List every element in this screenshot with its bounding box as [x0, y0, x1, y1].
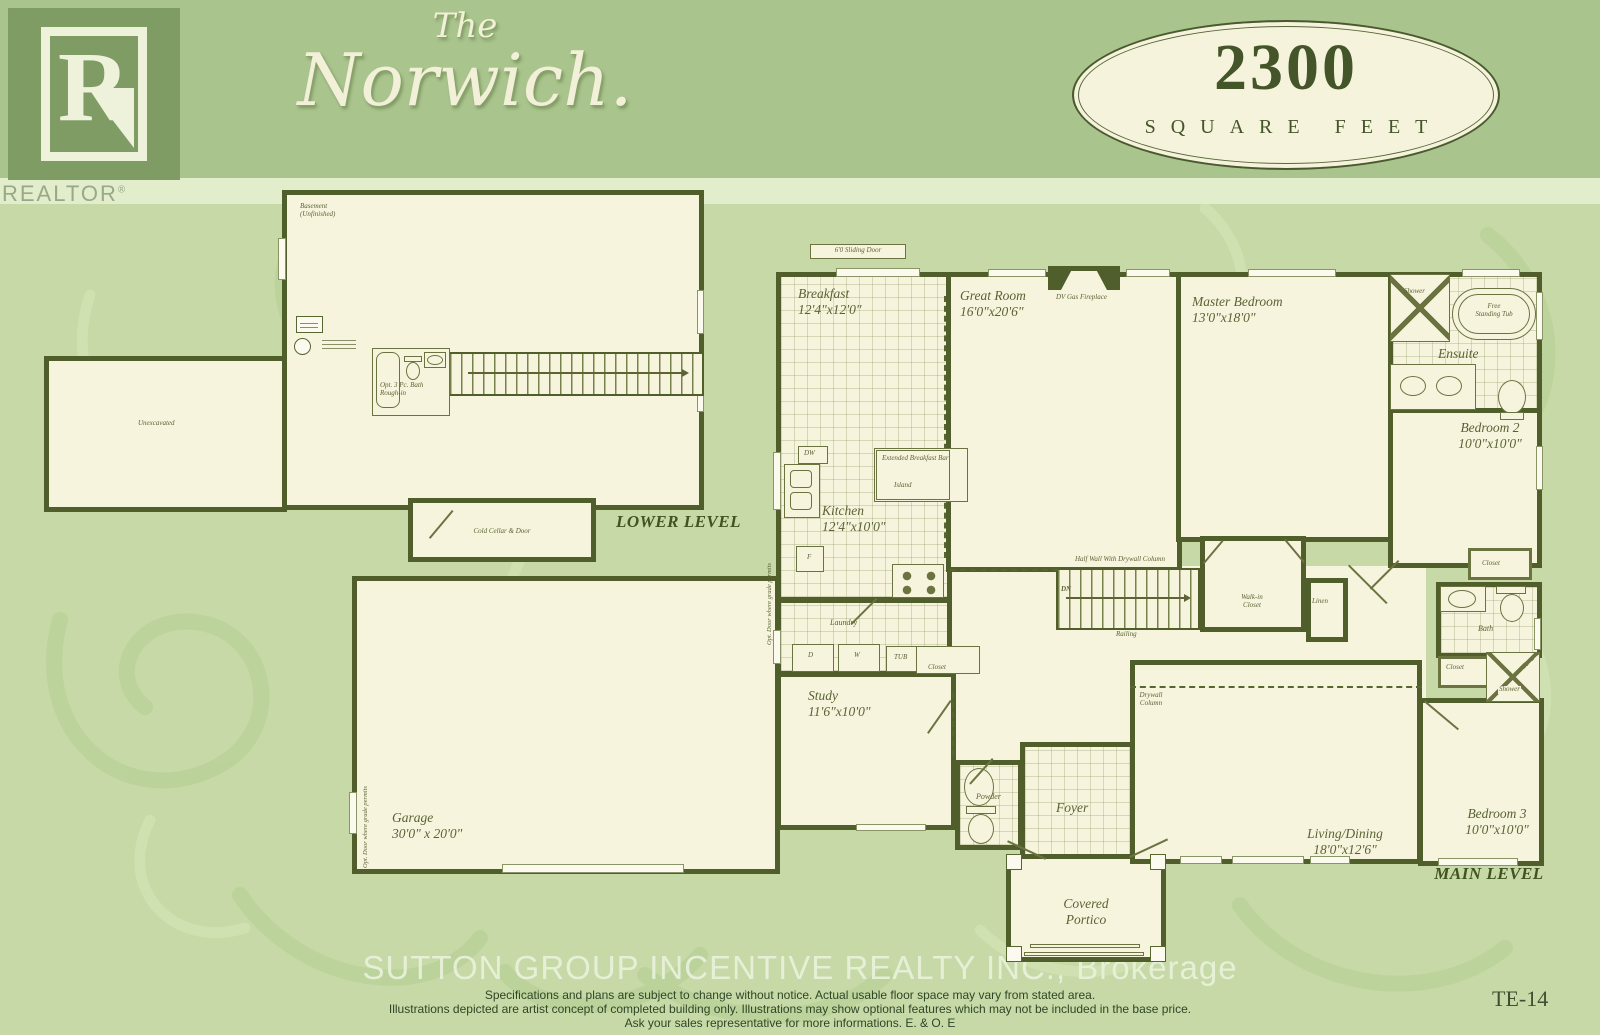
closet-top — [1468, 548, 1532, 580]
room-label-kitchen: Kitchen 12'4"x10'0" — [822, 503, 886, 534]
badge-caption: SQUARE FEET — [1072, 116, 1500, 139]
door-opening — [773, 630, 781, 664]
basement-window — [278, 238, 286, 280]
opt-door-label: Opt. Door where grade permits — [766, 563, 773, 645]
window — [1310, 856, 1350, 864]
toilet-icon — [406, 362, 420, 380]
badge-number: 2300 — [1072, 30, 1500, 106]
room-label-garage: Garage 30'0" x 20'0" — [392, 810, 462, 841]
disclaimer-line: Illustrations depicted are artist concep… — [0, 1002, 1580, 1016]
basement-stairs — [448, 352, 704, 396]
freestanding-tub-label: Free Standing Tub — [1466, 303, 1522, 318]
room-label-ensuite: Ensuite — [1438, 346, 1479, 362]
window — [856, 824, 926, 831]
main-stairs — [1056, 568, 1200, 630]
annotation-squiggle — [300, 320, 318, 328]
portico-pilaster — [1150, 854, 1166, 870]
window — [1180, 856, 1222, 864]
railing-label: Railing — [1116, 631, 1137, 639]
shower-stall-icon — [1486, 652, 1540, 702]
door-opening — [773, 452, 781, 510]
washer-label: W — [854, 652, 860, 660]
toilet-tank-icon — [1496, 586, 1526, 594]
room-label-powder: Powder — [976, 792, 1001, 801]
walk-in-closet-room — [1200, 536, 1306, 632]
disclaimer-line: Ask your sales representative for more i… — [0, 1016, 1580, 1030]
closet-label: Closet — [928, 664, 946, 672]
registered-mark: ® — [118, 185, 127, 196]
toilet-base-icon — [1500, 412, 1524, 420]
walk-in-closet-label: Walk-in Closet — [1222, 594, 1282, 609]
portico-pilaster — [1006, 854, 1022, 870]
realtor-caption: REALTOR® — [2, 181, 222, 207]
portico-step — [1030, 944, 1140, 948]
realtor-logo-frame: R — [41, 27, 147, 161]
window — [1462, 269, 1520, 277]
side-door-opening — [349, 792, 357, 834]
sliding-door-label: 6'0 Sliding Door — [812, 247, 904, 255]
sink-icon — [1436, 376, 1462, 396]
drywall-column-dashed — [1130, 686, 1422, 688]
half-wall-dashed — [950, 569, 1058, 571]
sliding-door-opening — [836, 268, 920, 277]
room-label-foyer: Foyer — [1056, 800, 1088, 816]
fireplace-label: DV Gas Fireplace — [1056, 294, 1107, 302]
room-label-bath: Bath — [1478, 624, 1493, 633]
room-label-master: Master Bedroom 13'0"x18'0" — [1192, 294, 1283, 325]
toilet-icon — [968, 814, 994, 844]
sink-icon — [1400, 376, 1426, 396]
realtor-logo-icon: R — [8, 8, 180, 180]
window — [988, 269, 1046, 277]
sink-bowl-icon — [790, 470, 812, 488]
main-level-label: MAIN LEVEL — [1424, 864, 1554, 884]
cold-cellar-label: Cold Cellar & Door — [462, 528, 542, 536]
closet-label: Closet — [1482, 560, 1500, 568]
toilet-icon — [1500, 594, 1524, 622]
open-wall-dashed — [944, 296, 946, 558]
stairs-arrowhead-icon — [682, 369, 693, 377]
study-opening-dashed — [952, 692, 954, 756]
room-label-laundry: Laundry — [830, 618, 857, 627]
lower-level-label: LOWER LEVEL — [616, 512, 741, 532]
linen-closet — [1306, 578, 1348, 642]
bath-roughin-label: Opt. 3 Pc. Bath Rough-in — [380, 382, 426, 397]
plan-title: The Norwich. — [250, 6, 680, 114]
window — [1534, 618, 1541, 650]
shower-stall-icon — [1390, 274, 1450, 342]
window — [1536, 446, 1543, 490]
garage-door-opening — [502, 864, 684, 873]
basement-window — [697, 290, 704, 334]
portico-pilaster — [1150, 946, 1166, 962]
header-light-strip — [0, 178, 1600, 204]
basement-annotation-circle — [294, 338, 311, 355]
bedroom3-room — [1418, 698, 1544, 866]
sink-bowl-icon — [790, 492, 812, 510]
plan-title-name: Norwich. — [250, 46, 680, 114]
disclaimer-line: Specifications and plans are subject to … — [0, 988, 1580, 1002]
island-label: Island — [894, 482, 912, 490]
unexcavated-room — [44, 356, 287, 512]
closet-2 — [1438, 656, 1490, 688]
room-label-portico: Covered Portico — [1036, 896, 1136, 927]
half-wall-label: Half Wall With Drywall Column — [1075, 556, 1165, 564]
unexcavated-label: Unexcavated — [138, 420, 175, 428]
range-icon — [892, 564, 944, 598]
basement-note: Basement (Unfinished) — [300, 203, 352, 218]
closet-box — [916, 646, 980, 674]
basement-room — [282, 190, 704, 510]
portico-step — [1024, 952, 1144, 956]
room-label-breakfast: Breakfast 12'4"x12'0" — [798, 286, 862, 317]
dn-label: DN — [1061, 586, 1071, 594]
window — [1536, 292, 1543, 340]
sink-icon — [427, 355, 443, 365]
flyer-canvas: R REALTOR® The Norwich. 2300 SQUARE FEET… — [0, 0, 1600, 1035]
dryer-label: D — [808, 652, 813, 660]
stairs-direction-line — [468, 372, 682, 374]
dw-label: DW — [804, 450, 815, 458]
brokerage-watermark: SUTTON GROUP INCENTIVE REALTY INC., Brok… — [0, 949, 1600, 987]
stairs-arrowhead-icon — [1184, 594, 1195, 602]
closet-label: Closet — [1446, 664, 1464, 672]
breakfast-bar-label: Extended Breakfast Bar — [882, 455, 949, 463]
tub-icon — [376, 352, 400, 408]
opt-door-label: Opt. Door where grade permits — [362, 786, 369, 868]
stairs-direction-line — [1066, 597, 1184, 599]
tub-label: TUB — [894, 654, 907, 662]
shower-label: Shower — [1498, 686, 1521, 694]
room-label-study: Study 11'6"x10'0" — [808, 688, 871, 719]
sink-icon — [1448, 590, 1476, 608]
window — [1248, 269, 1336, 277]
annotation-squiggle — [322, 340, 356, 349]
room-label-bedroom2: Bedroom 2 10'0"x10'0" — [1440, 420, 1540, 451]
square-feet-badge: 2300 SQUARE FEET — [1072, 20, 1500, 170]
window — [1126, 269, 1170, 277]
drywall-column-label: Drywall Column — [1126, 692, 1176, 707]
fireplace-firebox — [1061, 271, 1107, 290]
room-label-bedroom3: Bedroom 3 10'0"x10'0" — [1442, 806, 1552, 837]
window — [1232, 856, 1304, 864]
toilet-icon — [1498, 380, 1526, 414]
portico-pilaster — [1006, 946, 1022, 962]
room-label-living: Living/Dining 18'0"x12'6" — [1280, 826, 1410, 857]
fireplace-icon — [1048, 266, 1120, 290]
fridge-label: F — [807, 554, 811, 562]
shower-label: Shower — [1404, 288, 1425, 296]
room-label-great-room: Great Room 16'0"x20'6" — [960, 288, 1026, 319]
sheet-code: TE-14 — [1492, 986, 1548, 1012]
toilet-tank-icon — [966, 806, 996, 814]
linen-label: Linen — [1312, 598, 1328, 606]
